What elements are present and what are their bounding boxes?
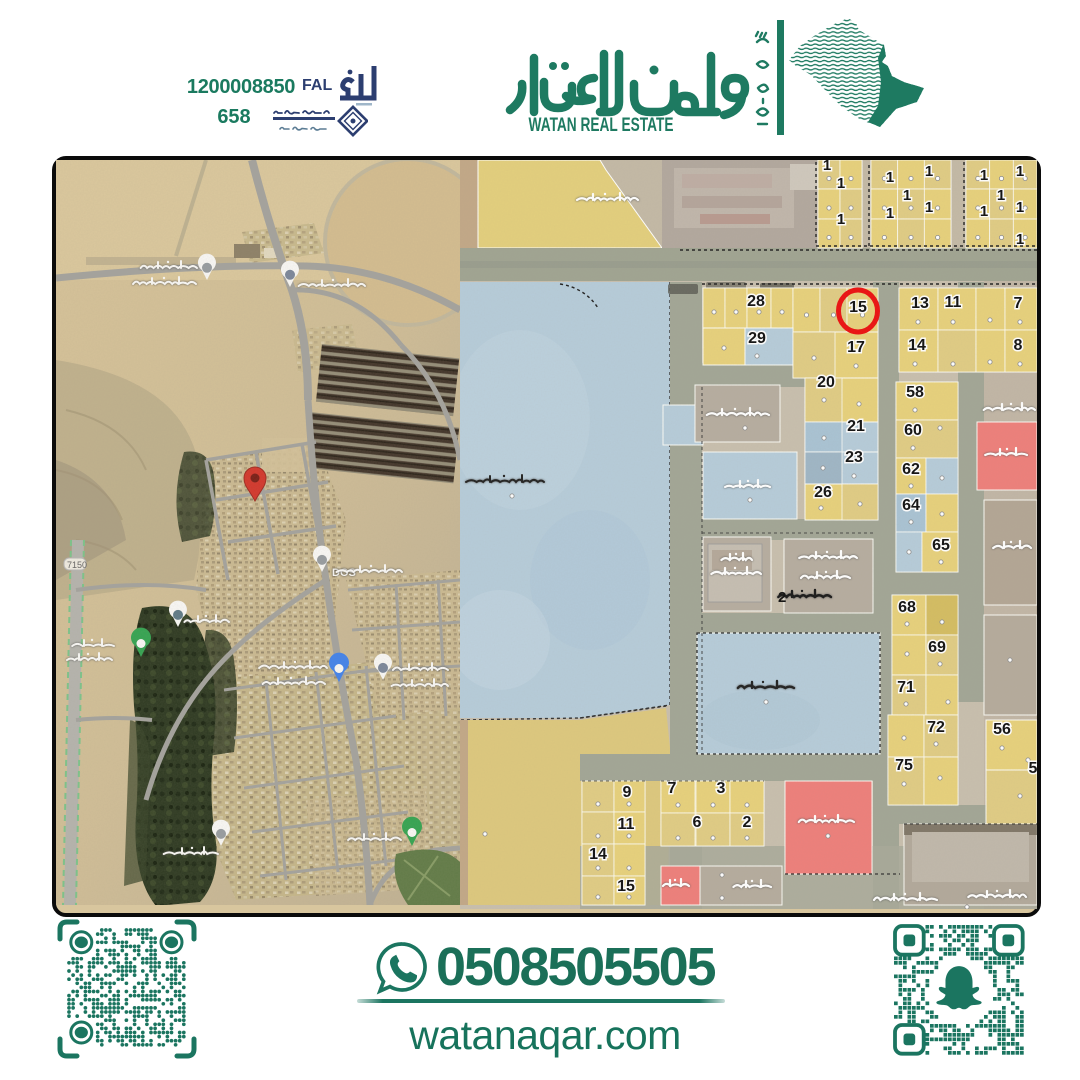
svg-text:FAL: FAL — [302, 77, 332, 94]
